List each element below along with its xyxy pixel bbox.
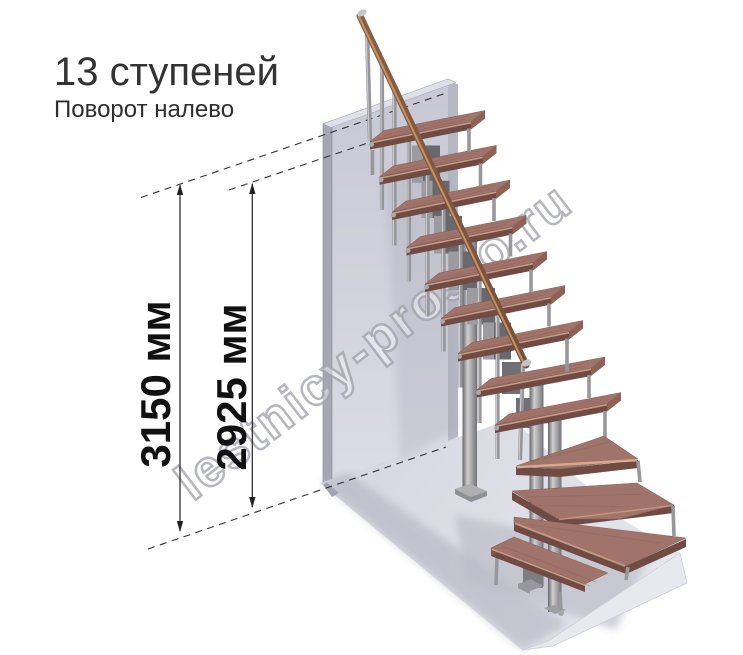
svg-text:13 ступеней: 13 ступеней [54, 50, 279, 94]
svg-text:3150 мм: 3150 мм [132, 300, 179, 467]
svg-text:2925 мм: 2925 мм [208, 303, 255, 470]
svg-text:Поворот налево: Поворот налево [54, 96, 234, 123]
